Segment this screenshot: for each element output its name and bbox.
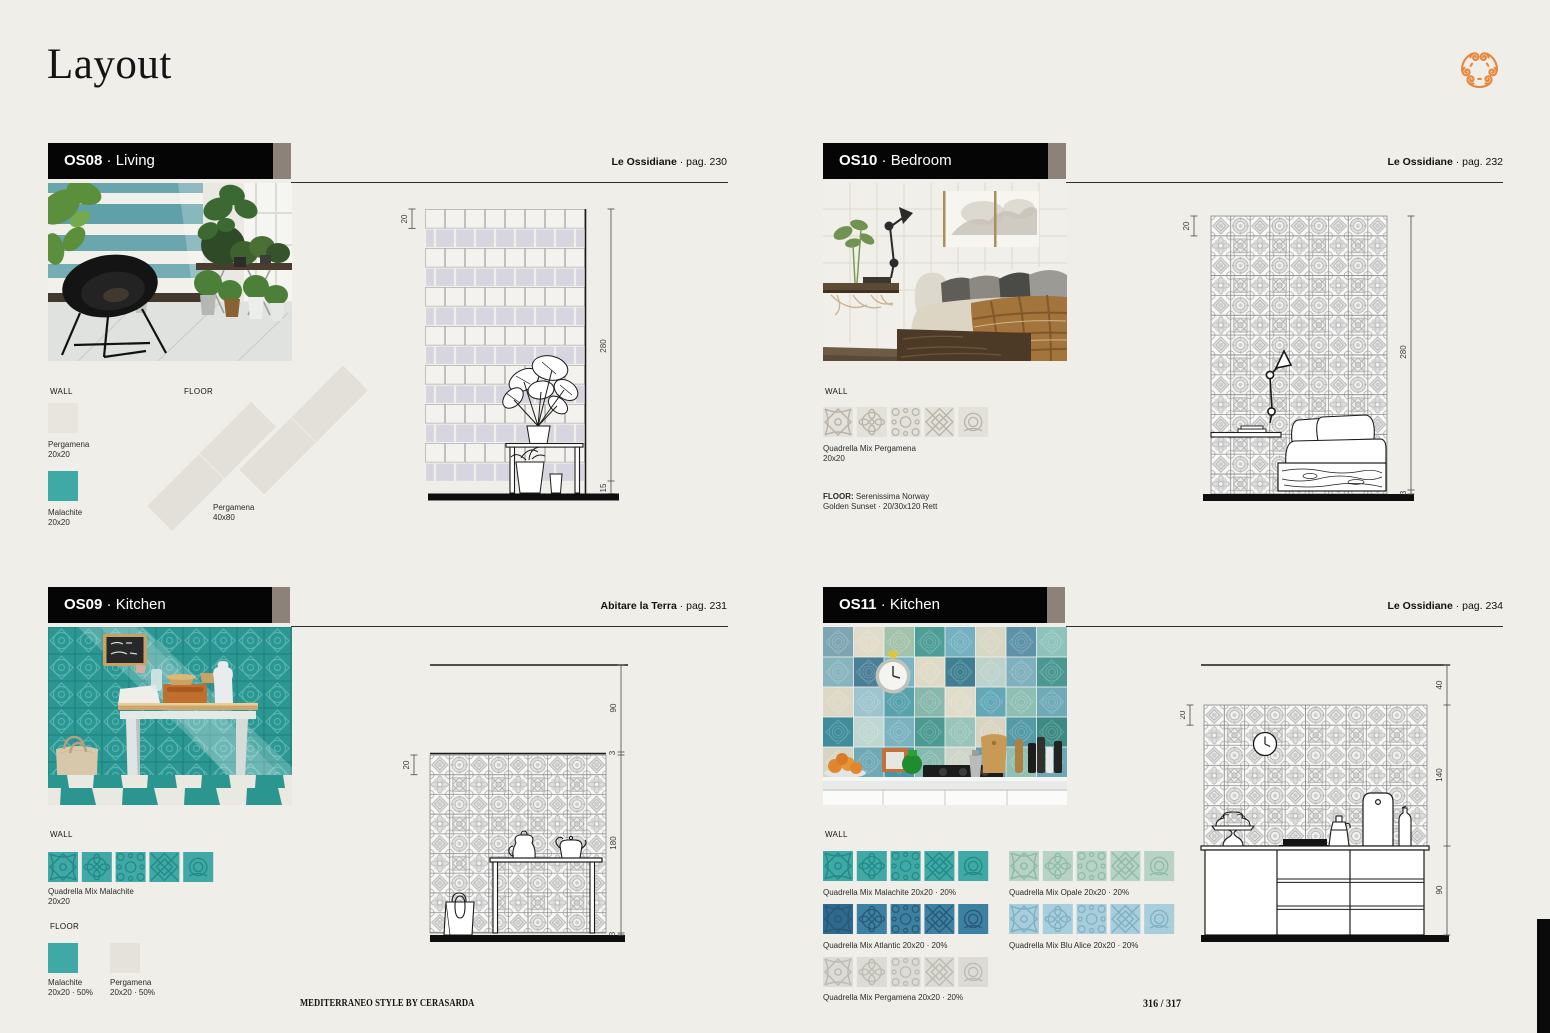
svg-text:180: 180	[609, 836, 618, 850]
svg-text:15: 15	[599, 483, 608, 492]
svg-text:20: 20	[1180, 710, 1187, 719]
svg-text:280: 280	[1399, 345, 1408, 359]
svg-text:40: 40	[1435, 680, 1444, 689]
svg-text:20: 20	[402, 760, 411, 769]
svg-text:20: 20	[1182, 221, 1191, 230]
svg-text:3: 3	[608, 750, 617, 755]
svg-text:3: 3	[1399, 490, 1408, 495]
svg-text:90: 90	[1435, 885, 1444, 894]
svg-text:20: 20	[400, 214, 409, 223]
svg-text:90: 90	[609, 703, 618, 712]
svg-text:140: 140	[1435, 768, 1444, 782]
svg-text:280: 280	[599, 339, 608, 353]
svg-text:3: 3	[608, 931, 617, 936]
